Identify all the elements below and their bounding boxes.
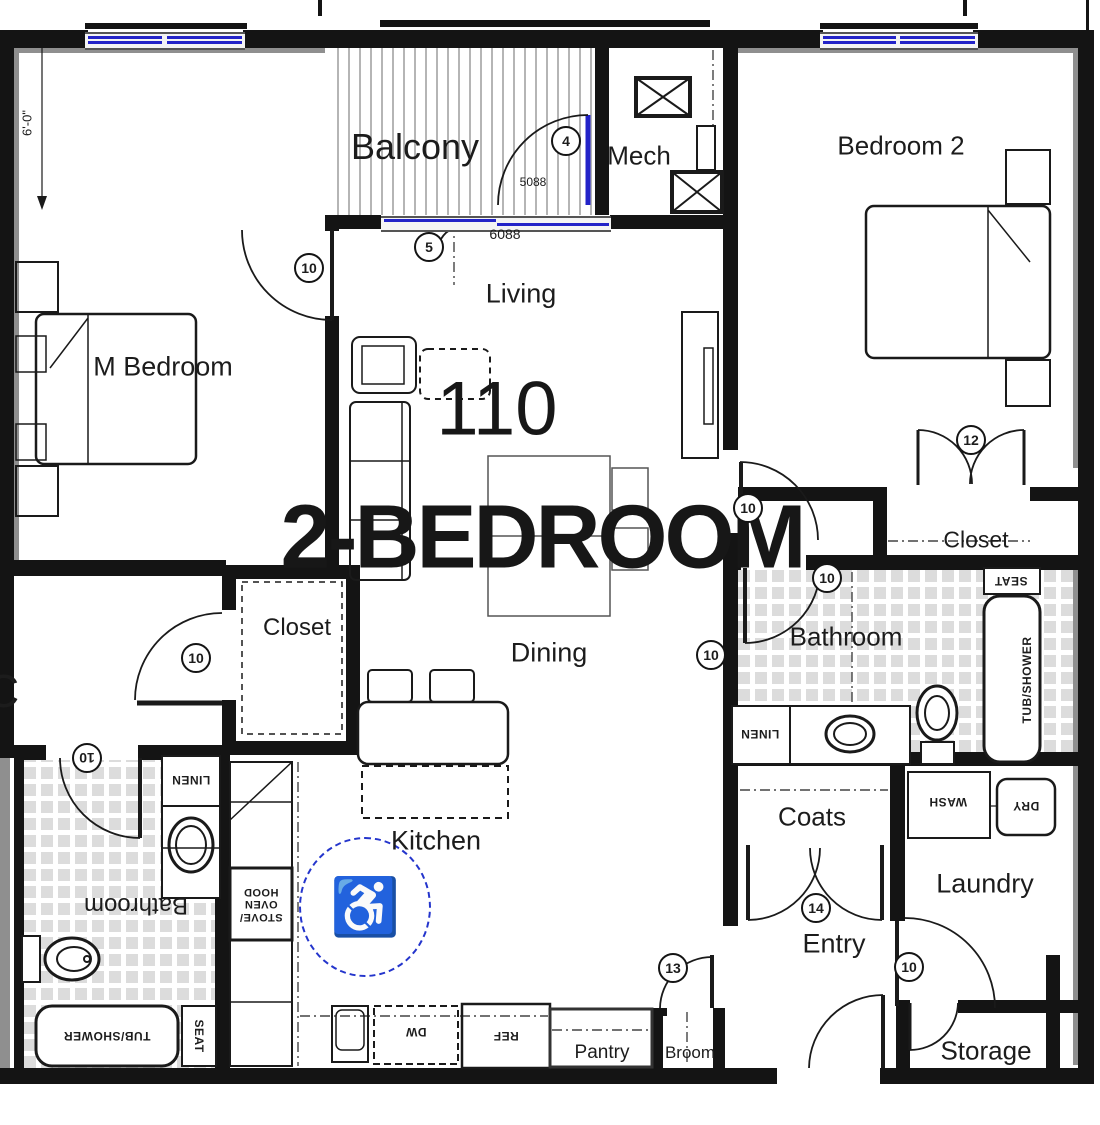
door-tag-10: 10 — [812, 563, 842, 593]
dimension-arrowhead — [37, 196, 47, 210]
armchair-cushion — [362, 346, 404, 384]
room-label-balcony: Balcony — [351, 126, 479, 168]
door-tag-10: 10 — [733, 493, 763, 523]
tub-shower-label: TUB/SHOWER — [64, 1029, 151, 1043]
toilet-tank — [22, 936, 40, 982]
room-label-pantry: Pantry — [575, 1042, 630, 1064]
dishwasher-label: DW — [406, 1025, 427, 1039]
room-label-broom: Broom — [665, 1043, 715, 1063]
washer-label: WASH — [929, 795, 967, 809]
room-label-bathroom: Bathroom — [790, 622, 903, 653]
window-glass — [88, 41, 162, 44]
dimension-balcony-depth: 6'-0" — [20, 110, 35, 136]
door-tag-10-mirrored: 10 — [72, 743, 102, 773]
seat-label: SEAT — [192, 1019, 206, 1052]
window-glass — [900, 41, 975, 44]
mech-duct — [697, 126, 715, 170]
door-tag-10: 10 — [894, 952, 924, 982]
door-tag-10: 10 — [294, 253, 324, 283]
closet-shelving-dashed — [242, 582, 342, 734]
neighbor-room-label-partial: C — [0, 664, 19, 718]
room-label-kitchen: Kitchen — [391, 826, 481, 857]
window-glass — [167, 36, 242, 39]
room-label-closet-bedroom2: Closet — [943, 527, 1008, 554]
toilet-flush — [84, 956, 90, 962]
slider-panel — [384, 219, 496, 222]
toilet-tank — [921, 742, 954, 764]
dimension-balcony-door: 5088 — [520, 175, 547, 189]
bedside-shelf — [16, 424, 46, 460]
room-label-master-bedroom: M Bedroom — [93, 352, 233, 383]
door-tag-5: 5 — [414, 232, 444, 262]
seat-label: SEAT — [994, 574, 1027, 588]
room-label-entry: Entry — [802, 929, 865, 960]
door-swings — [60, 115, 1024, 1068]
window-glass — [823, 36, 896, 39]
unit-type-title: 2-BEDROOM — [280, 487, 803, 590]
room-label-coats: Coats — [778, 802, 846, 833]
window-glass — [823, 41, 896, 44]
bed-fold — [50, 314, 88, 464]
base-cabinets-dashed — [362, 766, 508, 818]
door-tag-4: 4 — [551, 126, 581, 156]
dimension-balcony-opening: 6088 — [489, 226, 520, 242]
floorplan-unit-110: ♿ — [0, 0, 1100, 1125]
room-label-closet-master: Closet — [263, 614, 331, 642]
kitchen-sink — [332, 1006, 368, 1062]
linen-label: LINEN — [741, 727, 780, 741]
sink-basin — [834, 723, 866, 745]
window-glass — [167, 41, 242, 44]
nightstand — [16, 466, 58, 516]
room-label-storage: Storage — [940, 1036, 1031, 1067]
door-arc — [60, 758, 140, 838]
bedside-shelf — [16, 336, 46, 372]
room-label-dining: Dining — [511, 638, 588, 669]
door-tag-13: 13 — [658, 953, 688, 983]
wheelchair-accessibility-icon: ♿ — [330, 874, 400, 940]
tub-shower-label: TUB/SHOWER — [1020, 637, 1034, 724]
room-label-mech: Mech — [607, 141, 671, 172]
stove-label: STOVE/ OVEN HOOD — [239, 885, 282, 923]
bedroom2-bed — [866, 206, 1050, 358]
door-tag-12: 12 — [956, 425, 986, 455]
window-glass — [88, 36, 162, 39]
room-label-living: Living — [486, 279, 557, 310]
sink-basin — [176, 826, 206, 864]
room-label-laundry: Laundry — [936, 869, 1034, 900]
linen-label: LINEN — [172, 773, 211, 787]
kitchen-peninsula — [358, 702, 508, 764]
door-tag-10: 10 — [696, 640, 726, 670]
room-label-bedroom2: Bedroom 2 — [837, 131, 964, 162]
nightstand — [16, 262, 58, 312]
fridge-label: REF — [493, 1029, 519, 1043]
stool — [430, 670, 474, 702]
nightstand — [1006, 360, 1050, 406]
toilet-bowl — [925, 696, 949, 730]
dryer-label: DRY — [1013, 799, 1039, 813]
entry-door-arc — [809, 995, 883, 1068]
room-label-bathroom2: Bathroom — [84, 891, 188, 919]
door-tag-14: 14 — [801, 893, 831, 923]
wheelchair-turning-circle: ♿ — [299, 837, 431, 977]
window-glass — [900, 36, 975, 39]
door-tag-10: 10 — [181, 643, 211, 673]
tv — [704, 348, 713, 424]
dimension — [37, 48, 47, 210]
nightstand — [1006, 150, 1050, 204]
unit-number: 110 — [436, 366, 557, 453]
master-bed — [36, 314, 196, 464]
stool — [368, 670, 412, 702]
bed-fold — [988, 206, 1030, 358]
